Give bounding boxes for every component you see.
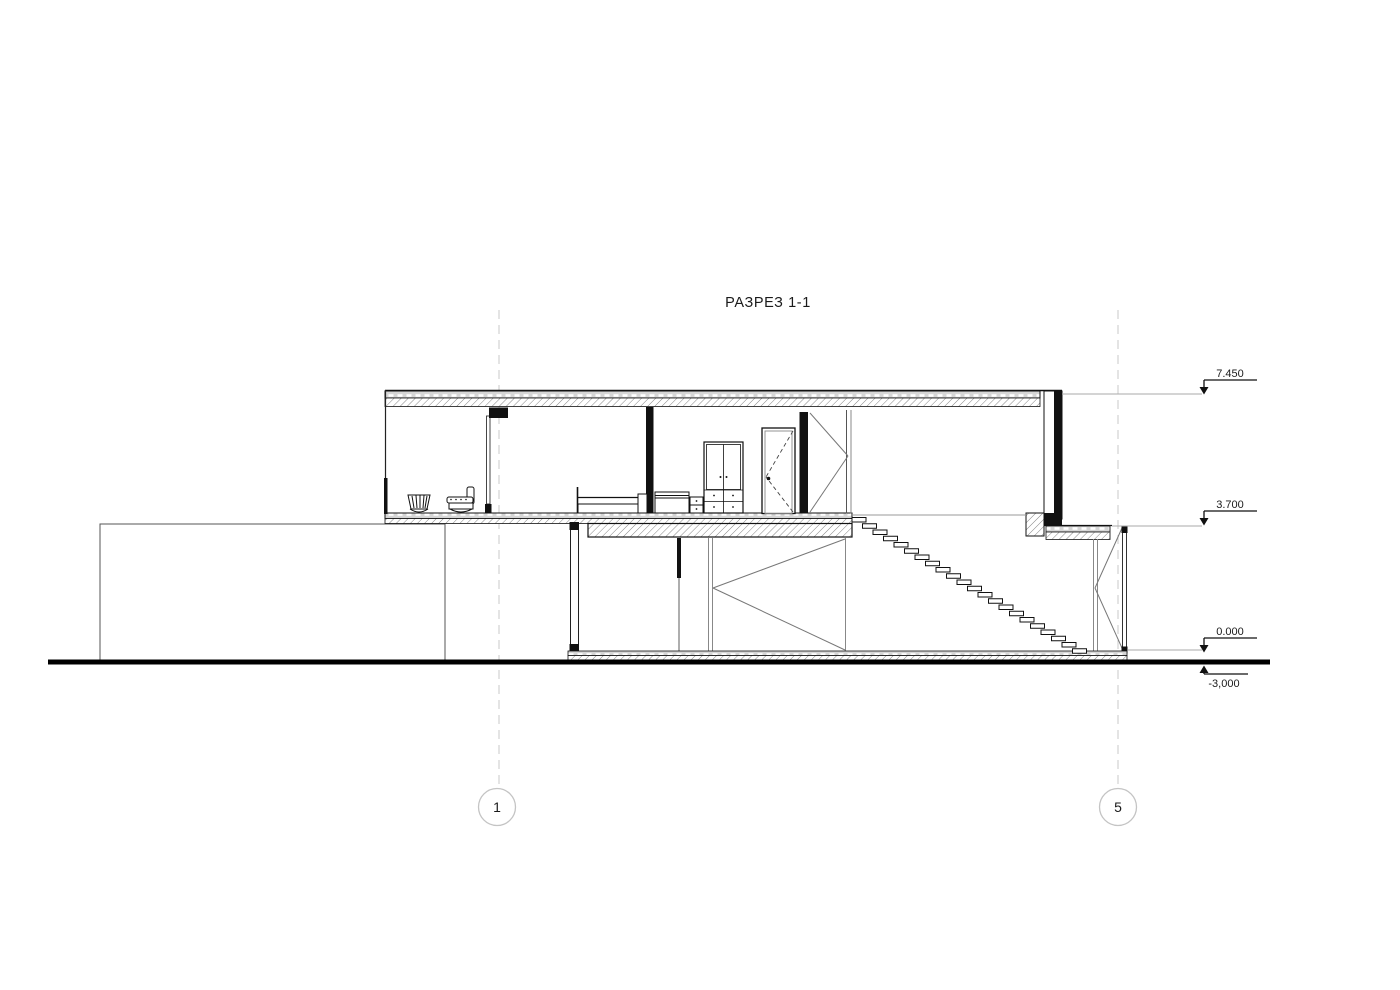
upper-window — [810, 410, 851, 514]
parapet-block — [1026, 513, 1044, 536]
stair-tread — [915, 555, 929, 560]
elevation-marker-basement: -3,000 — [1200, 666, 1249, 691]
elevation-leaders — [1062, 394, 1202, 650]
ground-floor-slab — [568, 651, 1127, 660]
stair-tread — [1052, 636, 1066, 641]
ground-floor-glazed-wall — [709, 538, 846, 651]
stair-tread — [936, 568, 950, 573]
stair-tread — [999, 605, 1013, 610]
nightstand — [690, 497, 703, 513]
beam-section — [489, 408, 508, 419]
drawing-title: РАЗРЕЗ 1-1 — [725, 295, 811, 311]
grid-bubble-5-label: 5 — [1114, 799, 1122, 815]
elevation-label-second-floor: 3.700 — [1216, 499, 1244, 511]
nightstand-left — [638, 494, 647, 513]
stair-tread — [1031, 624, 1045, 629]
armchair — [408, 495, 430, 512]
bed — [578, 487, 648, 513]
stair-tread — [1062, 643, 1076, 648]
upper-right-wall — [1026, 391, 1062, 536]
ground-line — [48, 660, 1270, 665]
drawing-sheet: РАЗРЕЗ 1-1 — [0, 0, 1400, 990]
stair-tread — [873, 530, 887, 535]
upper-column — [485, 408, 508, 514]
interior-door — [762, 428, 795, 514]
grid-bubble-1-label: 1 — [493, 799, 501, 815]
dropped-beam — [588, 524, 852, 538]
stair-tread — [947, 574, 961, 579]
sofa — [447, 487, 474, 512]
stair-tread — [978, 593, 992, 598]
grid-axes — [499, 310, 1118, 788]
stair-tread — [894, 543, 908, 548]
stair-tread — [1073, 649, 1087, 654]
stair-tread — [852, 518, 866, 523]
elevation-marker-roof: 7.450 — [1200, 368, 1258, 395]
ground-floor-left-wall — [570, 522, 580, 652]
stair-tread — [957, 580, 971, 585]
stair-tread — [863, 524, 877, 529]
section-drawing: РАЗРЕЗ 1-1 — [0, 0, 1400, 990]
stair-tread — [968, 586, 982, 591]
lower-roof-slab — [1044, 526, 1112, 540]
ground-floor-partition — [677, 538, 681, 651]
ground-floor-right-window — [1094, 526, 1128, 654]
wardrobe — [704, 442, 743, 513]
left-terrace-outline — [100, 524, 445, 660]
elevation-label-roof: 7.450 — [1216, 368, 1244, 380]
stair-tread — [1020, 618, 1034, 623]
stair-tread — [905, 549, 919, 554]
door-handle — [767, 477, 771, 481]
dresser — [655, 492, 689, 513]
stair-tread — [989, 599, 1003, 604]
stair-tread — [1041, 630, 1055, 635]
elevation-label-basement: -3,000 — [1208, 678, 1239, 690]
roof-slab — [385, 391, 1062, 407]
grid-bubble-5: 5 — [1100, 789, 1137, 826]
elevation-marker-second-floor: 3.700 — [1200, 499, 1258, 526]
stair-tread — [884, 536, 898, 541]
elevation-marker-zero: 0.000 — [1200, 626, 1258, 653]
grid-bubble-1: 1 — [479, 789, 516, 826]
elevation-label-zero: 0.000 — [1216, 626, 1244, 638]
stair-tread — [926, 561, 940, 566]
stair-tread — [1010, 611, 1024, 616]
upper-left-glazing — [384, 390, 388, 514]
upper-floor-slab — [385, 513, 852, 537]
